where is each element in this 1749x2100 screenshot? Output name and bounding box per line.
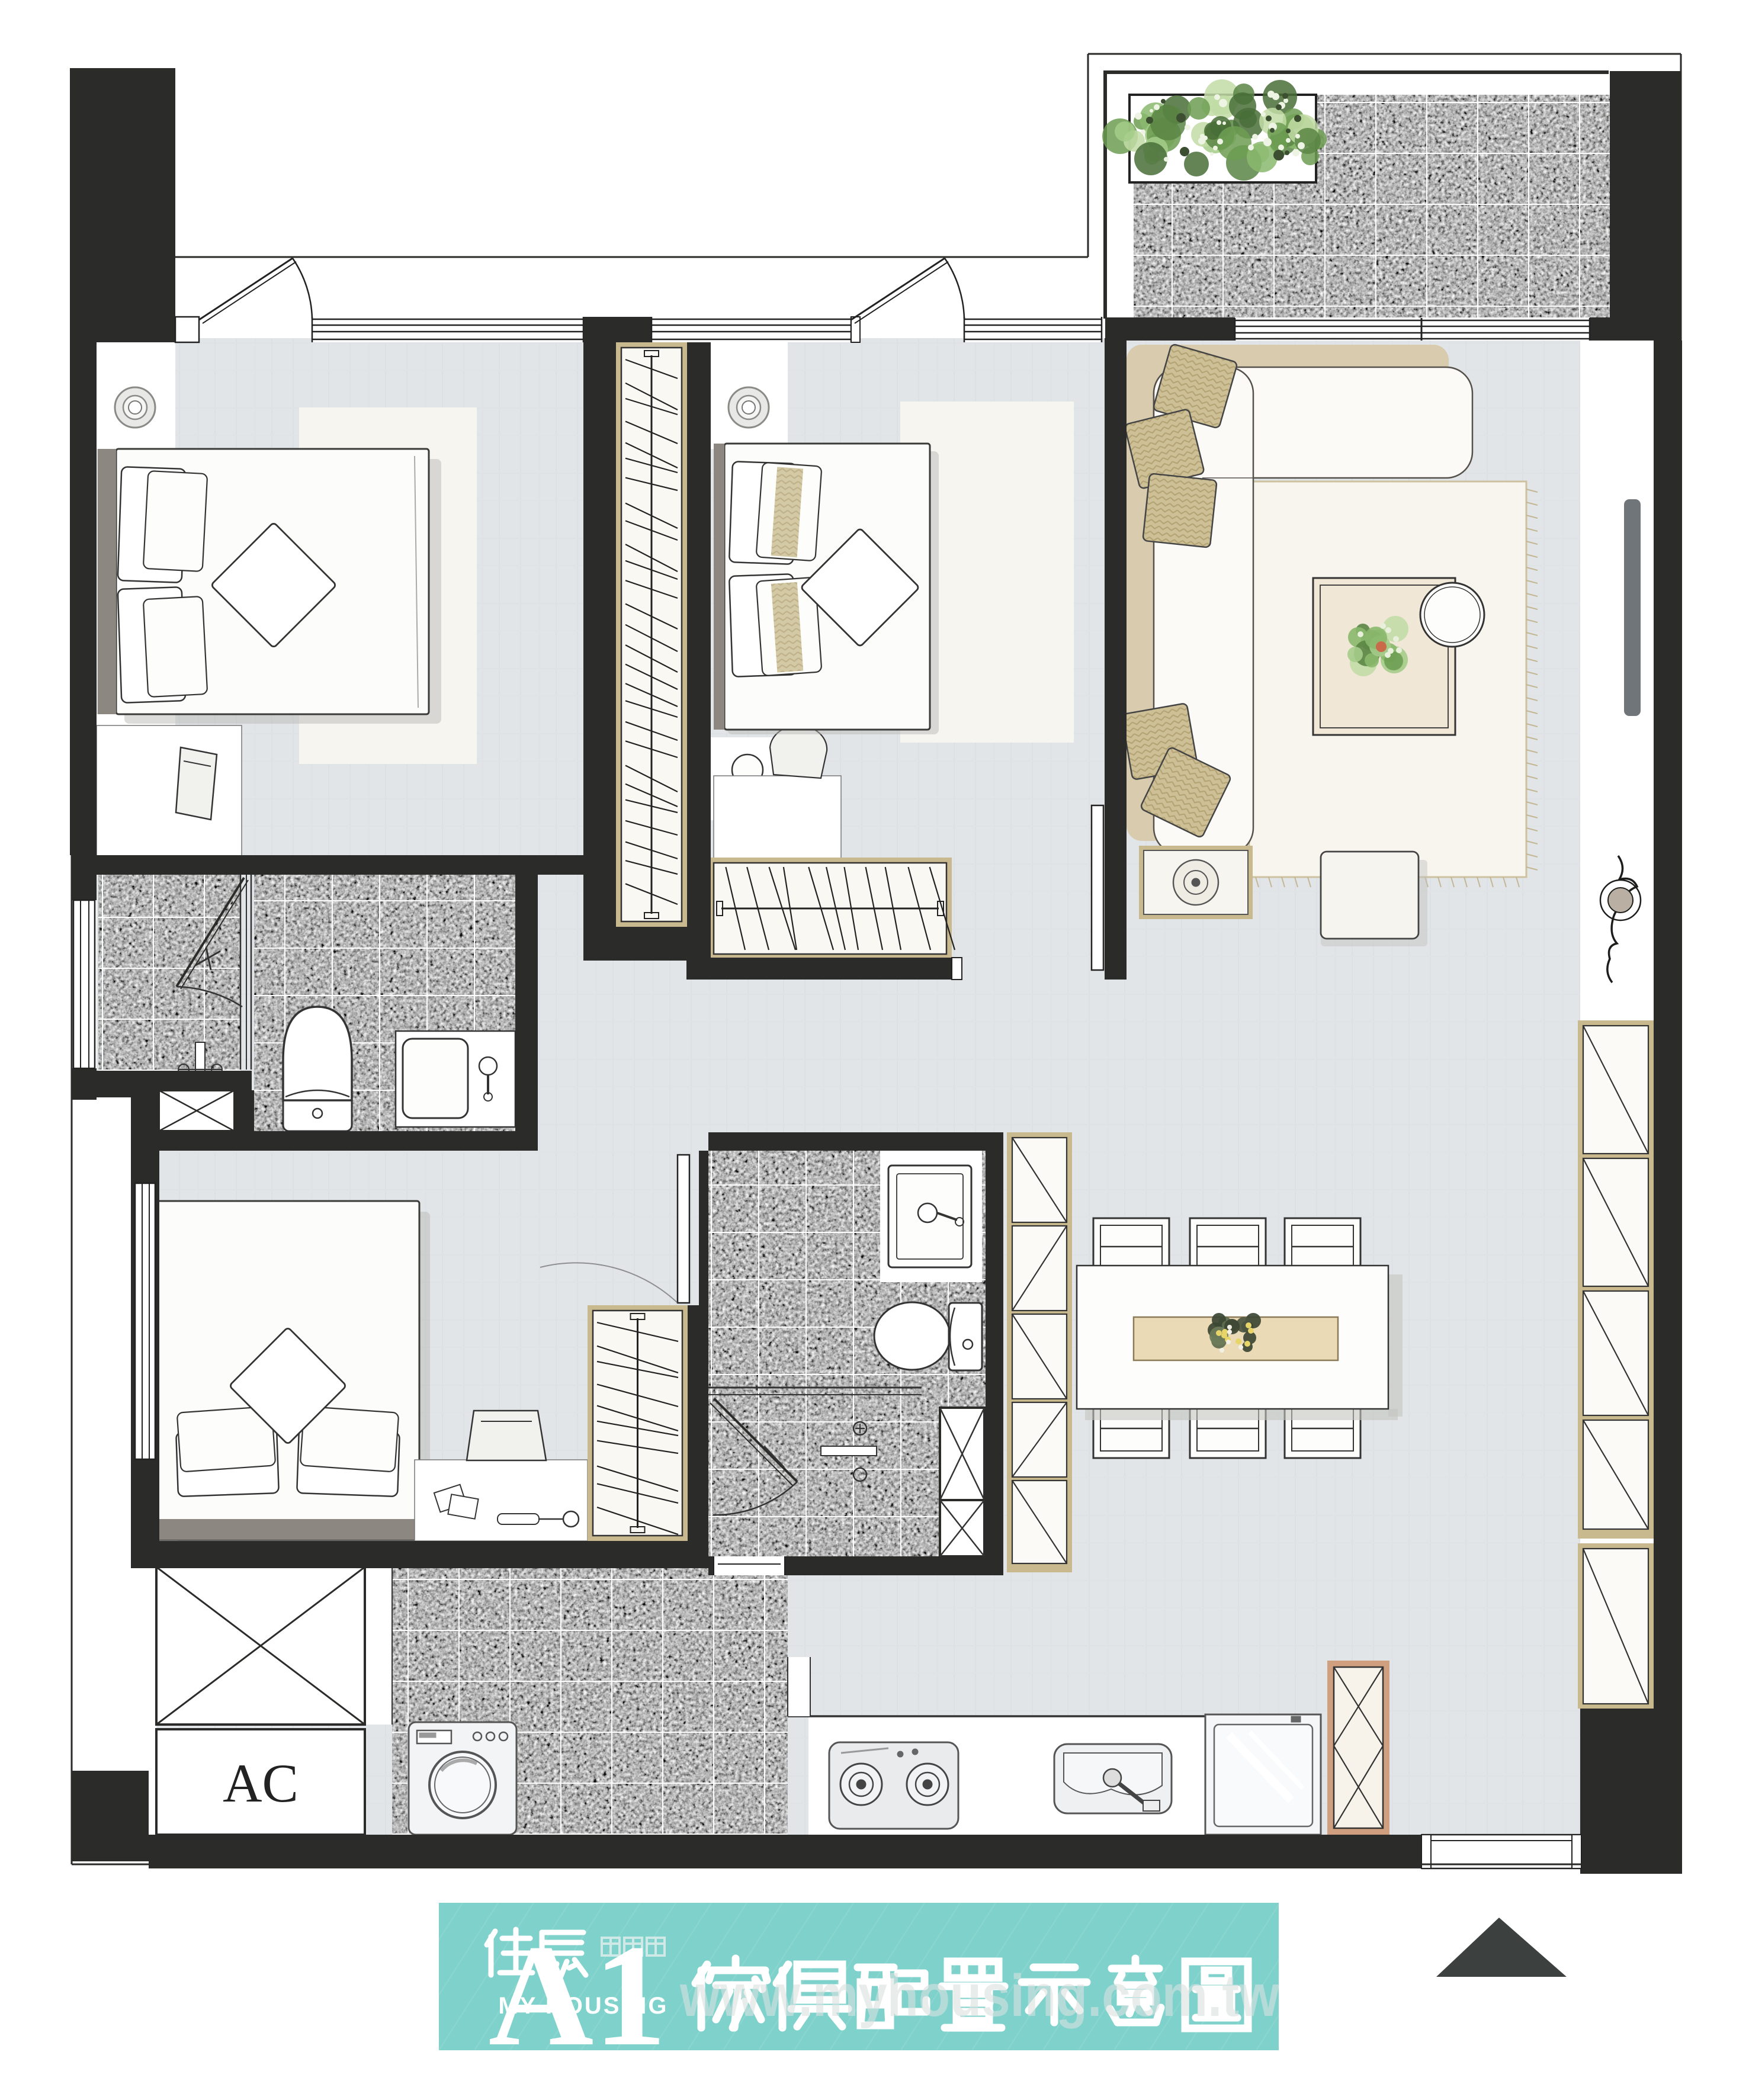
- svg-text:MY HOUSING: MY HOUSING: [498, 1993, 668, 2019]
- svg-text:AC: AC: [223, 1753, 299, 1813]
- svg-text:www.myhousing.com.tw: www.myhousing.com.tw: [679, 1963, 1279, 2029]
